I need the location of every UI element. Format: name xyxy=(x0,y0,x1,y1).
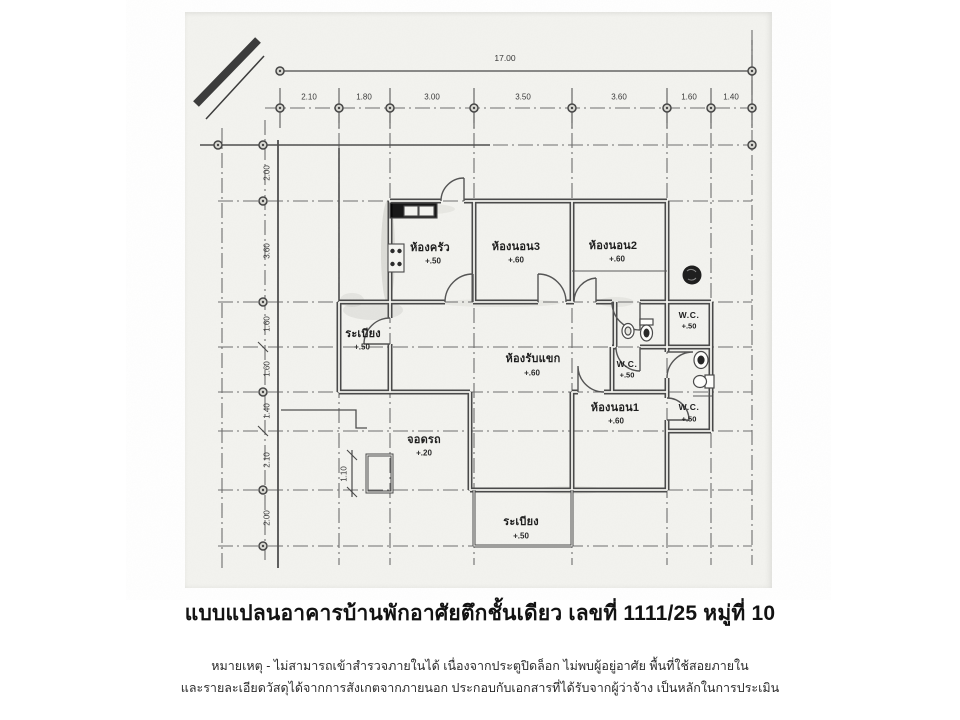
dim-left-0: 2.00 xyxy=(263,165,272,181)
kitchen-stove xyxy=(388,244,404,272)
dim-top-3: 3.50 xyxy=(515,93,531,102)
room-label-kitchen: ห้องครัว xyxy=(410,238,450,256)
room-level-living: +.60 xyxy=(524,369,540,378)
room-level-parking: +.20 xyxy=(416,449,432,458)
plan-note-line1: หมายเหตุ - ไม่สามารถเข้าสำรวจภายในได้ เน… xyxy=(0,656,960,678)
dim-left-4: 1.40 xyxy=(263,403,272,419)
plan-notes: หมายเหตุ - ไม่สามารถเข้าสำรวจภายในได้ เน… xyxy=(0,656,960,700)
dim-left-2: 1.60 xyxy=(263,316,272,332)
room-level-bedroom1: +.60 xyxy=(608,417,624,426)
room-label-wc-bottom: W.C. xyxy=(679,402,700,412)
room-label-parking: จอดรถ xyxy=(407,430,441,448)
dim-left-3: 1.60 xyxy=(263,361,272,377)
room-label-bedroom2: ห้องนอน2 xyxy=(589,236,637,254)
dim-left-6: 2.00 xyxy=(263,510,272,526)
room-label-wc-top: W.C. xyxy=(679,310,700,320)
dim-left-5: 2.10 xyxy=(263,452,272,468)
room-level-wc-bottom: +.50 xyxy=(682,415,697,424)
dim-total-width: 17.00 xyxy=(494,53,515,63)
septic-tank-mark xyxy=(683,266,702,285)
room-level-wc-mid: +.50 xyxy=(620,371,635,380)
dim-top-2: 3.00 xyxy=(424,93,440,102)
dim-top-0: 2.10 xyxy=(301,93,317,102)
plan-title: แบบแปลนอาคารบ้านพักอาศัยตึกชั้นเดียว เลข… xyxy=(0,597,960,630)
room-level-bedroom3: +.60 xyxy=(508,256,524,265)
dim-left-1: 3.60 xyxy=(263,243,272,259)
room-level-kitchen: +.50 xyxy=(425,257,441,266)
room-label-balcony-bottom: ระเบียง xyxy=(503,512,539,530)
dim-step: 1.10 xyxy=(340,466,349,482)
kitchen-counter xyxy=(390,203,437,218)
floor-plan-drawing xyxy=(0,0,960,600)
room-label-bedroom1: ห้องนอน1 xyxy=(591,398,639,416)
room-label-wc-mid: W.C. xyxy=(617,359,638,369)
room-level-balcony-bottom: +.50 xyxy=(513,532,529,541)
room-level-wc-top: +.50 xyxy=(682,322,697,331)
dim-top-5: 1.60 xyxy=(681,93,697,102)
room-label-bedroom3: ห้องนอน3 xyxy=(492,237,540,255)
plan-note-line2: และรายละเอียดวัสดุได้จากการสังเกตจากภายน… xyxy=(0,678,960,700)
room-label-living: ห้องรับแขก xyxy=(506,349,561,367)
dim-top-1: 1.80 xyxy=(356,93,372,102)
dim-top-4: 3.60 xyxy=(611,93,627,102)
room-level-balcony-left: +.50 xyxy=(354,343,370,352)
room-label-balcony-left: ระเบียง xyxy=(345,324,381,342)
room-level-bedroom2: +.60 xyxy=(609,255,625,264)
page: ห้องครัว +.50 ห้องนอน3 +.60 ห้องนอน2 +.6… xyxy=(0,0,960,720)
dim-top-6: 1.40 xyxy=(723,93,739,102)
